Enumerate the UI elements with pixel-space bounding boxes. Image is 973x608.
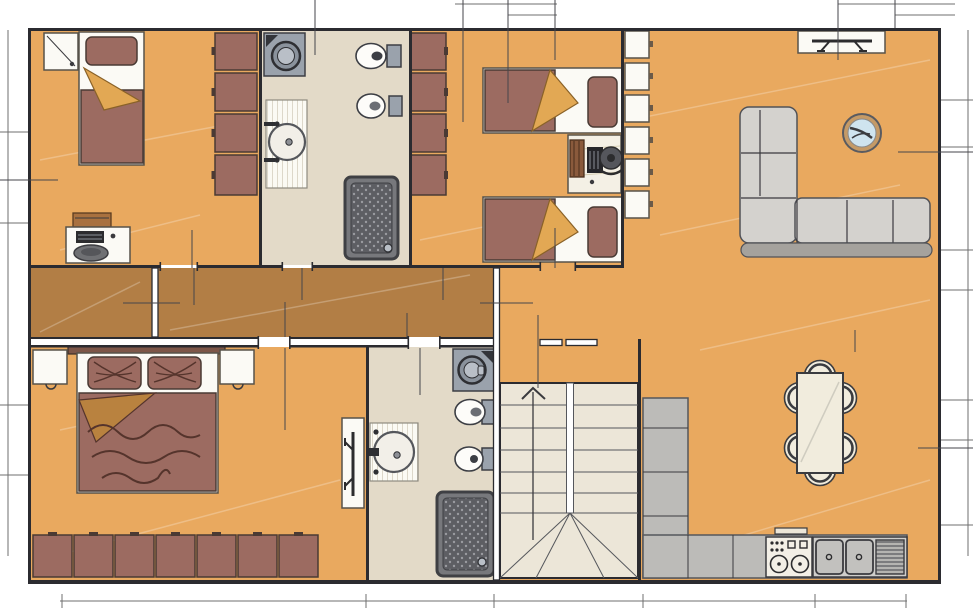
- pillow: [588, 207, 617, 257]
- tap: [264, 122, 275, 126]
- stove: [766, 537, 812, 577]
- shower-drain: [478, 558, 486, 566]
- stair-divider: [567, 383, 574, 513]
- shelving-unit: [625, 95, 649, 122]
- wardrobe-unit: [115, 535, 154, 577]
- wardrobe-handle: [444, 171, 448, 179]
- single-bed: [79, 32, 144, 165]
- door-jamb: [312, 262, 314, 271]
- bidet-tank: [389, 96, 402, 116]
- door-jamb: [289, 336, 291, 349]
- door-jamb: [540, 262, 542, 271]
- knob: [649, 137, 653, 143]
- sink-basin: [846, 540, 873, 574]
- wardrobe-unit: [74, 535, 113, 577]
- laptop: [76, 231, 104, 243]
- wardrobe-handle: [294, 532, 303, 536]
- tv-stand: [798, 31, 885, 53]
- outer-wall-bottom: [28, 580, 941, 584]
- outer-wall-right: [938, 28, 941, 584]
- round-side-table: [843, 114, 881, 152]
- knob: [649, 169, 653, 175]
- tap: [264, 158, 275, 162]
- outer-wall-left: [28, 28, 31, 584]
- wardrobe-unit: [410, 155, 446, 195]
- shelving-unit: [625, 127, 649, 154]
- door-jamb: [282, 262, 284, 271]
- knob: [649, 105, 653, 111]
- shower-tray: [345, 177, 398, 259]
- wall: [366, 347, 369, 580]
- staircase: [500, 383, 638, 578]
- sofa-seats: [795, 198, 930, 243]
- drain-knob: [394, 452, 400, 458]
- pillow: [86, 37, 137, 65]
- sofa-chaise: [740, 107, 797, 243]
- shelving-unit: [625, 63, 649, 90]
- washbasin-counter: [264, 100, 307, 188]
- single-bed: [483, 68, 622, 133]
- wardrobe-handle: [212, 88, 216, 96]
- wardrobe: [410, 33, 448, 195]
- wardrobe-handle: [171, 532, 180, 536]
- wardrobe-unit: [238, 535, 277, 577]
- wardrobe: [212, 33, 258, 195]
- wardrobe-handle: [444, 88, 448, 96]
- desk-area: [568, 135, 622, 193]
- wall-double: [494, 268, 500, 580]
- wardrobe-handle: [89, 532, 98, 536]
- drain-knob: [286, 139, 292, 145]
- wardrobe-handle: [212, 532, 221, 536]
- shower-drain: [384, 244, 392, 252]
- wardrobe-row: [33, 532, 318, 577]
- wall: [312, 265, 540, 268]
- handrail: [540, 340, 562, 346]
- toilet: [356, 44, 401, 69]
- pillow: [148, 357, 201, 389]
- wardrobe-handle: [212, 47, 216, 55]
- corridor-main-floor: [158, 268, 494, 337]
- wall: [31, 345, 258, 348]
- lamp: [70, 62, 74, 66]
- double-bed: [77, 353, 218, 493]
- single-bed: [483, 197, 622, 262]
- nightstand: [220, 350, 254, 384]
- wall: [409, 31, 412, 265]
- wall: [290, 337, 408, 339]
- floor-plan-canvas: [0, 0, 973, 608]
- knob: [649, 201, 653, 207]
- door-jamb: [575, 262, 577, 271]
- wall: [259, 31, 262, 265]
- mouse: [590, 180, 594, 184]
- wardrobe-handle: [444, 47, 448, 55]
- wardrobe-unit: [410, 73, 446, 111]
- bidet: [455, 447, 494, 471]
- outer-wall-top: [28, 28, 941, 31]
- wardrobe-unit: [197, 535, 236, 577]
- knob: [649, 73, 653, 79]
- wardrobe-unit: [156, 535, 195, 577]
- wardrobe-handle: [444, 129, 448, 137]
- wardrobe-handle: [48, 532, 57, 536]
- wall: [440, 345, 494, 348]
- pillow: [588, 77, 617, 127]
- sink-basin: [816, 540, 843, 574]
- door-jamb: [258, 336, 260, 349]
- towel-rail: [775, 528, 807, 534]
- wall: [31, 265, 160, 268]
- toilet-tank: [387, 45, 401, 67]
- wall: [638, 339, 641, 580]
- door-jamb: [439, 336, 441, 349]
- toilet: [455, 400, 495, 425]
- wardrobe-handle: [253, 532, 262, 536]
- handrail: [566, 340, 597, 346]
- wall: [575, 265, 624, 268]
- wardrobe-unit: [410, 33, 446, 70]
- nightstand: [33, 350, 67, 384]
- wall: [197, 265, 282, 268]
- drainer: [876, 540, 904, 574]
- shelving-unit: [625, 159, 649, 186]
- wardrobe-unit: [215, 155, 257, 195]
- wardrobe-unit: [215, 33, 257, 70]
- shelving-unit: [625, 191, 649, 218]
- floor-plan-page: [0, 0, 973, 608]
- kitchen-sink: [813, 537, 907, 577]
- wardrobe-handle: [212, 171, 216, 179]
- knob: [649, 41, 653, 47]
- door-jamb: [408, 336, 410, 349]
- tv-stand: [342, 418, 364, 508]
- wall: [31, 337, 258, 339]
- mouse: [111, 234, 116, 239]
- wall: [290, 345, 408, 348]
- wardrobe-handle: [212, 129, 216, 137]
- wardrobe-unit: [215, 73, 257, 111]
- bidet: [357, 94, 402, 118]
- bidet-bowl: [455, 447, 483, 471]
- washing-machine: [264, 33, 305, 76]
- wall: [440, 337, 494, 339]
- washing-machine: [453, 349, 494, 391]
- washbasin-counter: [367, 423, 418, 481]
- shelving-unit: [625, 31, 649, 58]
- wardrobe-unit: [410, 114, 446, 152]
- wardrobe-unit: [215, 114, 257, 152]
- wardrobe-unit: [279, 535, 318, 577]
- door-jamb: [197, 262, 199, 271]
- washbasin: [374, 432, 414, 472]
- pillow: [88, 357, 141, 389]
- shower-tray: [437, 492, 494, 576]
- wall-shelf: [73, 213, 111, 227]
- sofa-front-rail: [741, 243, 932, 257]
- wall: [621, 31, 624, 265]
- wardrobe-unit: [33, 535, 72, 577]
- wardrobe-handle: [130, 532, 139, 536]
- door-jamb: [160, 262, 162, 271]
- books: [570, 140, 584, 177]
